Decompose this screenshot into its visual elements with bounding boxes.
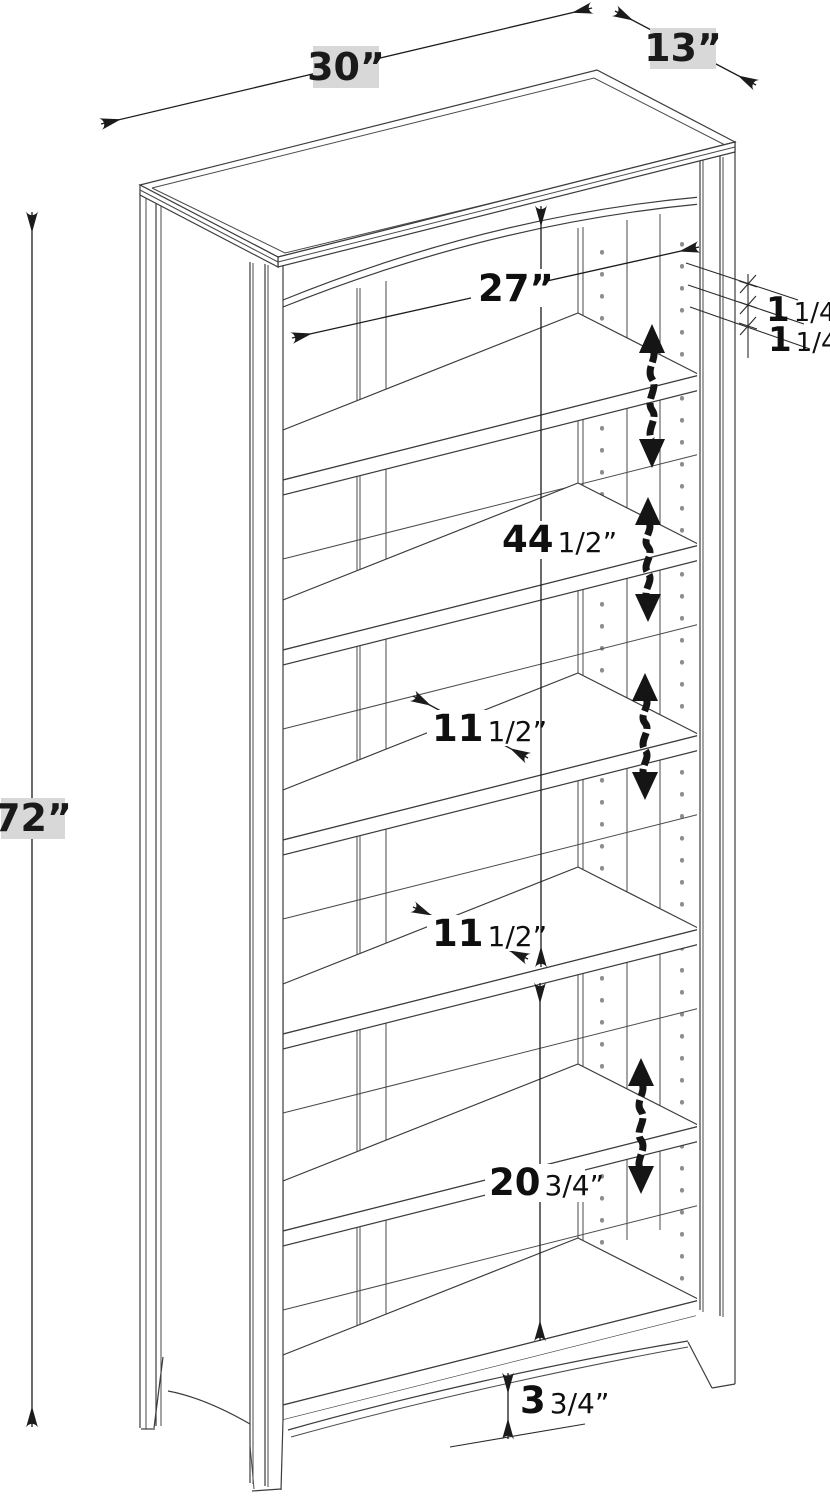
height-value: 72” [0,796,72,840]
top-panel [140,70,735,267]
right-side-panel [688,140,735,1388]
dimension-label-height: 72” [0,796,72,840]
apron-height-value: 33/4” [520,1379,609,1422]
dimension-label-depth: 13” [644,26,722,70]
diagram-canvas: 30” 13” 72” 27” 441/2” 111/2” 111/2” 203… [0,0,830,1500]
bookcase-dimension-diagram: 30” 13” 72” 27” 441/2” 111/2” 111/2” 203… [0,0,830,1500]
shelf-1 [283,313,700,495]
shelf-2 [283,483,700,665]
width-value: 30” [307,45,385,89]
bottom-shelf [283,1238,700,1420]
depth-value: 13” [644,26,722,70]
dimension-label-width: 30” [307,45,385,89]
left-side-panel [140,192,283,1491]
shelf-4 [283,867,700,1049]
interior-width-value: 27” [478,267,554,310]
